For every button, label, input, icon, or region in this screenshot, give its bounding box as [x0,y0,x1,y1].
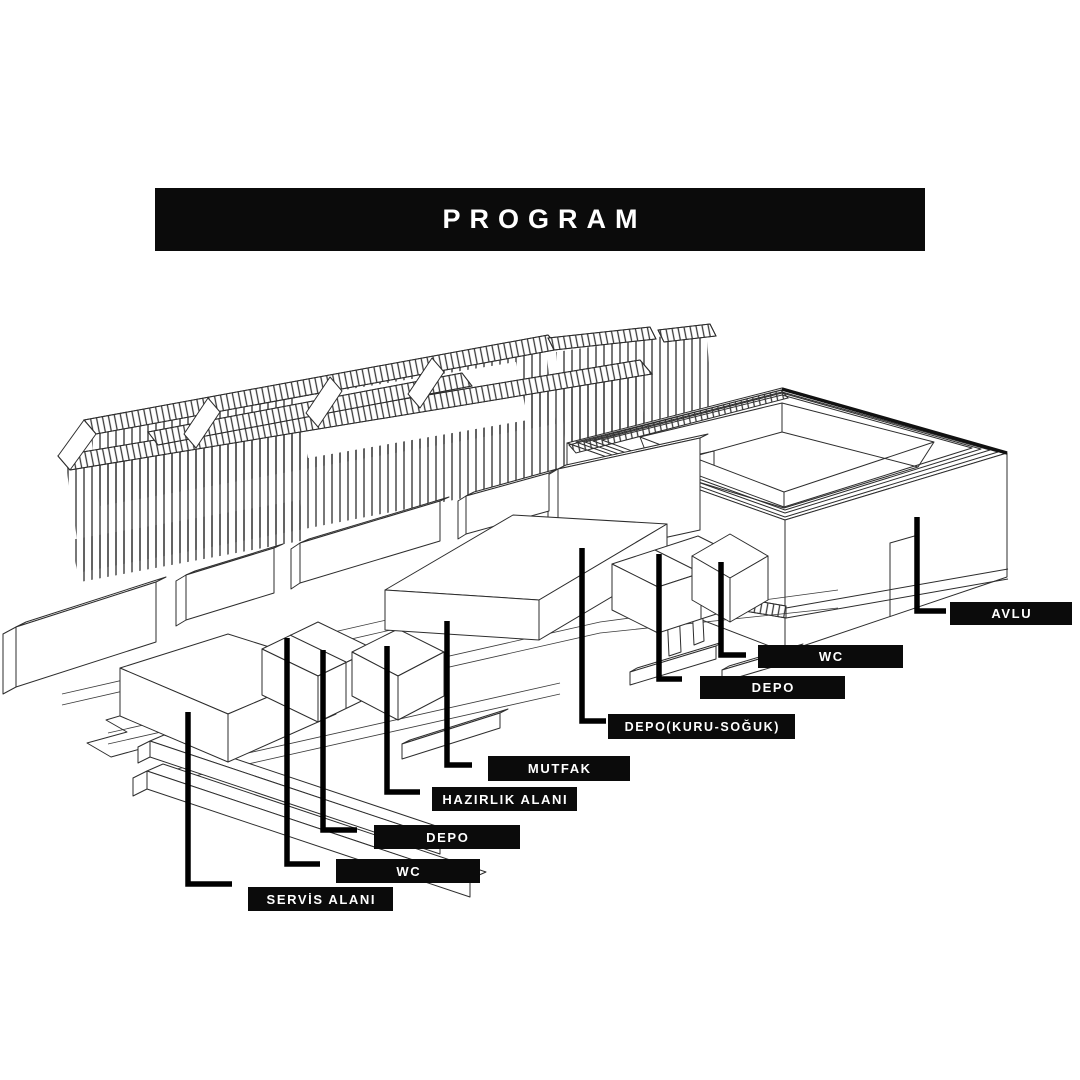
label-depo-left: DEPO [374,825,520,849]
program-diagram-page: PROGRAM [0,0,1080,1080]
label-wc-right: WC [758,645,903,668]
label-depo-right: DEPO [700,676,845,699]
hazirlik-alani-box [352,629,444,720]
ground-pad [402,709,508,759]
label-wc-left: WC [336,859,480,883]
axonometric-diagram [0,0,1080,1080]
label-avlu: AVLU [950,602,1072,625]
label-servis-alani: SERVİS ALANI [248,887,393,911]
label-depo-kuru-soguk: DEPO(KURU-SOĞUK) [608,714,795,739]
label-hazirlik-alani: HAZIRLIK ALANI [432,787,577,811]
label-mutfak: MUTFAK [488,756,630,781]
